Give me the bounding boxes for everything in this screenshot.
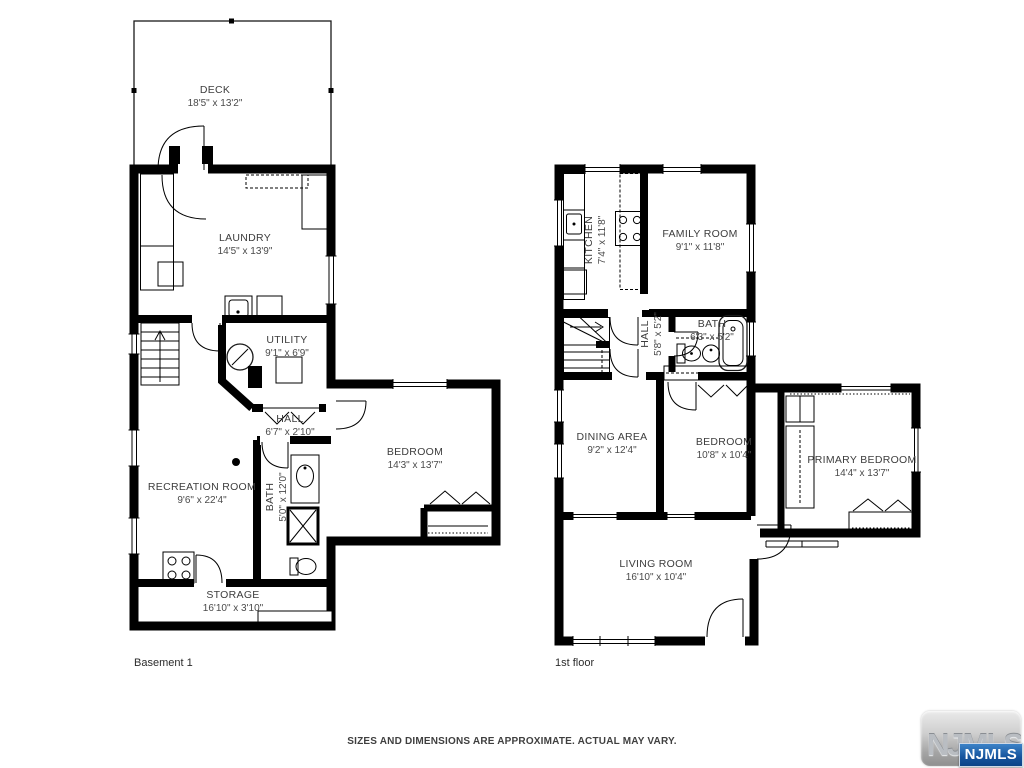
room-label-deck: DECK 18'5" x 13'2" <box>188 84 243 110</box>
room-name: KITCHEN <box>583 216 596 265</box>
room-name: LAUNDRY <box>218 232 273 245</box>
room-dims: 10'8" x 10'4" <box>696 449 752 462</box>
room-label-family-room: FAMILY ROOM 9'1" x 11'8" <box>662 228 737 254</box>
room-label-dining-area: DINING AREA 9'2" x 12'4" <box>577 431 648 457</box>
room-name: DINING AREA <box>577 431 648 444</box>
room-dims: 7'4" x 11'8" <box>596 216 609 265</box>
floor-label-first-floor: 1st floor <box>555 657 594 669</box>
room-name: FAMILY ROOM <box>662 228 737 241</box>
room-dims: 9'1" x 11'8" <box>662 241 737 254</box>
basement-plan <box>129 19 497 627</box>
room-name: DECK <box>188 84 243 97</box>
room-name: PRIMARY BEDROOM <box>807 454 916 467</box>
floor-label-basement: Basement 1 <box>134 657 193 669</box>
room-name: BEDROOM <box>696 436 752 449</box>
room-label-basement-bath: BATH 5'0" x 12'0" <box>264 472 290 521</box>
basement-bedroom-closet <box>424 491 492 538</box>
room-dims: 6'3" x 5'2" <box>690 331 734 344</box>
room-name: BATH <box>264 472 277 521</box>
basement-openings <box>129 164 448 622</box>
room-dims: 18'5" x 13'2" <box>188 97 243 110</box>
room-label-basement-hall: HALL 6'7" x 2'10" <box>265 413 314 439</box>
room-name: UTILITY <box>265 334 309 347</box>
room-label-first-bath: BATH 6'3" x 5'2" <box>690 318 734 344</box>
njmls-logo: NJMLS NJMLS <box>921 711 1021 766</box>
room-name: HALL <box>639 312 652 356</box>
room-dims: 5'8" x 5'2" <box>652 312 665 356</box>
room-label-first-hall: HALL 5'8" x 5'2" <box>639 312 665 356</box>
room-dims: 6'7" x 2'10" <box>265 426 314 439</box>
recreation-fixtures <box>163 458 240 583</box>
room-label-recreation-room: RECREATION ROOM 9'6" x 22'4" <box>148 481 256 507</box>
room-name: BATH <box>690 318 734 331</box>
basement-bath-fixtures <box>288 455 319 575</box>
floorplan-canvas: DECK 18'5" x 13'2" LAUNDRY 14'5" x 13'9"… <box>0 0 1024 768</box>
room-dims: 16'10" x 10'4" <box>619 571 692 584</box>
njmls-badge: NJMLS <box>959 743 1023 767</box>
room-label-kitchen: KITCHEN 7'4" x 11'8" <box>583 216 609 265</box>
room-name: HALL <box>265 413 314 426</box>
room-dims: 16'10" x 3'10" <box>203 602 263 615</box>
njmls-badge-text: NJMLS <box>965 746 1017 763</box>
room-name: LIVING ROOM <box>619 558 692 571</box>
basement-stairs <box>141 323 179 385</box>
room-name: STORAGE <box>203 589 263 602</box>
room-dims: 14'5" x 13'9" <box>218 245 273 258</box>
room-label-living-room: LIVING ROOM 16'10" x 10'4" <box>619 558 692 584</box>
room-label-first-bedroom: BEDROOM 10'8" x 10'4" <box>696 436 752 462</box>
room-dims: 14'3" x 13'7" <box>387 459 443 472</box>
room-dims: 5'0" x 12'0" <box>277 472 290 521</box>
room-label-basement-bedroom: BEDROOM 14'3" x 13'7" <box>387 446 443 472</box>
room-name: BEDROOM <box>387 446 443 459</box>
room-label-laundry: LAUNDRY 14'5" x 13'9" <box>218 232 273 258</box>
room-dims: 9'6" x 22'4" <box>148 494 256 507</box>
room-name: RECREATION ROOM <box>148 481 256 494</box>
room-label-storage: STORAGE 16'10" x 3'10" <box>203 589 263 615</box>
room-label-utility: UTILITY 9'1" x 6'9" <box>265 334 309 360</box>
disclaimer-text: SIZES AND DIMENSIONS ARE APPROXIMATE. AC… <box>0 736 1024 747</box>
first-floor-doors <box>596 317 791 637</box>
room-dims: 9'1" x 6'9" <box>265 347 309 360</box>
room-label-primary-bedroom: PRIMARY BEDROOM 14'4" x 13'7" <box>807 454 916 480</box>
room-dims: 14'4" x 13'7" <box>807 467 916 480</box>
room-dims: 9'2" x 12'4" <box>577 444 648 457</box>
floorplan-drawing <box>0 0 1024 768</box>
